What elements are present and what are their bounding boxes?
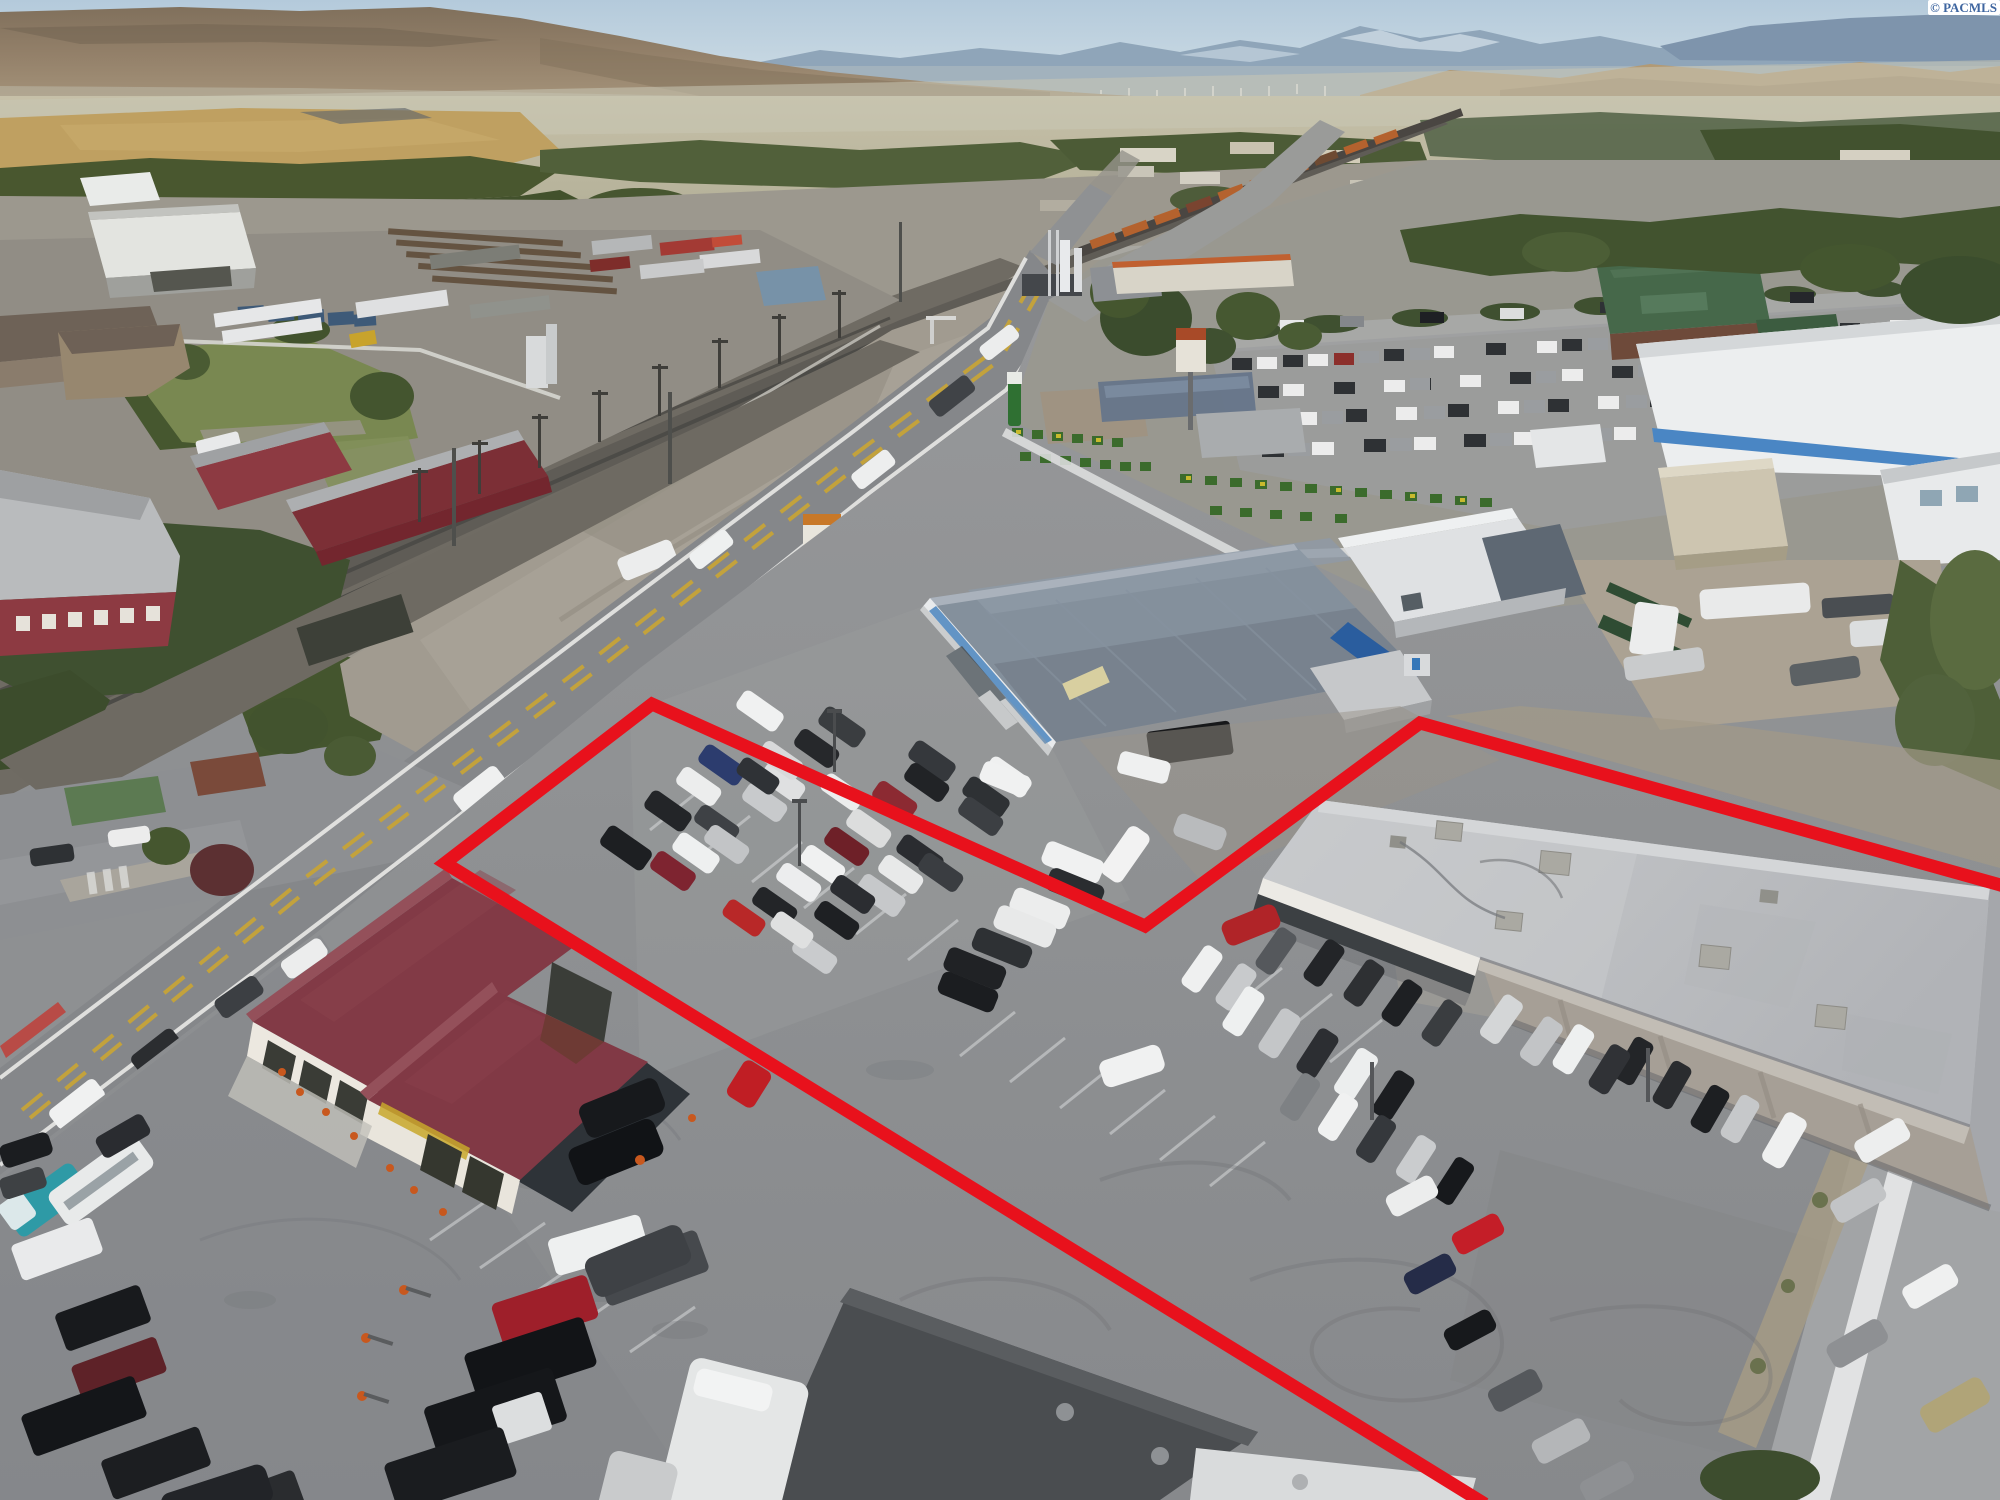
svg-text:© PACMLS: © PACMLS (1930, 0, 1997, 15)
